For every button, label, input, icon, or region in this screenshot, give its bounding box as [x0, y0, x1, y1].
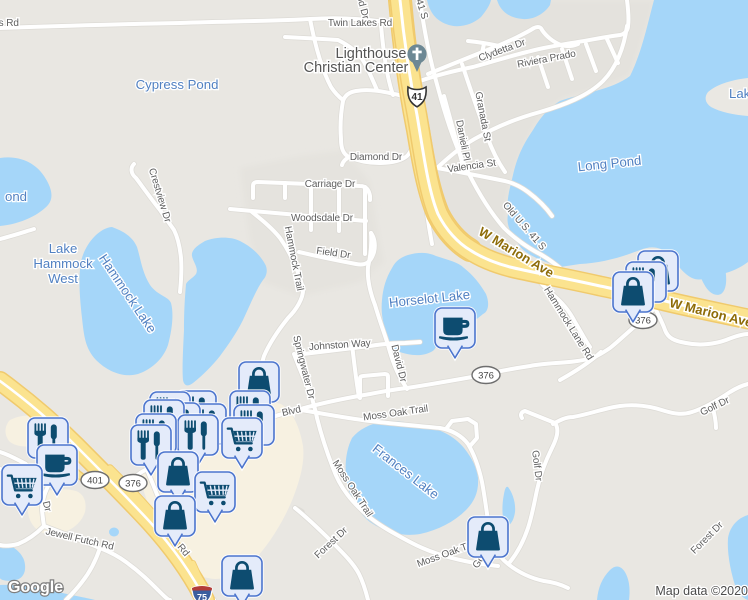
svg-text:ond: ond: [5, 189, 27, 204]
svg-text:376: 376: [478, 371, 494, 382]
svg-text:376: 376: [125, 479, 141, 490]
svg-text:Diamond Dr: Diamond Dr: [350, 152, 403, 163]
svg-text:Woodsdale Dr: Woodsdale Dr: [291, 213, 354, 224]
svg-text:75: 75: [197, 593, 207, 600]
svg-text:Google: Google: [8, 579, 63, 596]
svg-text:es Rd: es Rd: [0, 18, 19, 29]
svg-text:41: 41: [411, 92, 423, 103]
svg-text:Lak: Lak: [729, 86, 748, 101]
svg-text:401: 401: [87, 476, 103, 487]
svg-text:Twin Lakes Rd: Twin Lakes Rd: [328, 18, 392, 29]
svg-text:Map data ©2020: Map data ©2020: [655, 584, 748, 598]
svg-text:West: West: [48, 271, 78, 286]
svg-text:Carriage Dr: Carriage Dr: [305, 179, 356, 190]
svg-text:Cypress Pond: Cypress Pond: [136, 77, 219, 92]
svg-text:Hammock: Hammock: [33, 256, 93, 271]
svg-text:Christian Center: Christian Center: [304, 60, 409, 76]
svg-text:Lake: Lake: [49, 241, 78, 256]
